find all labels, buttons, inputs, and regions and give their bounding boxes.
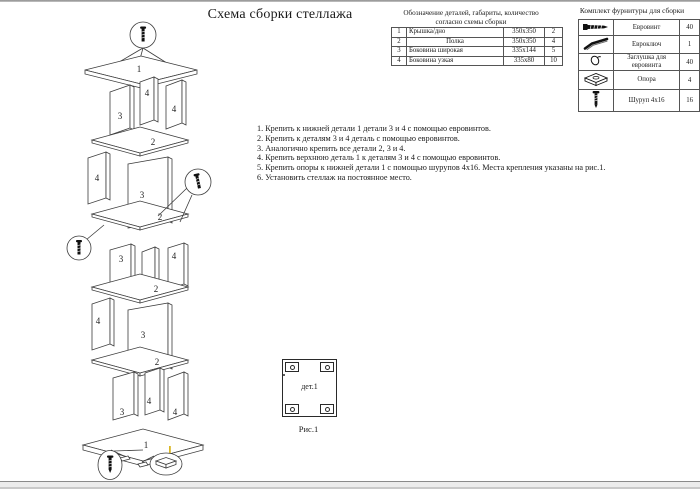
- part-label-shelf: 2: [151, 137, 156, 147]
- part-qty: 5: [545, 47, 563, 57]
- hardware-qty: 16: [680, 90, 700, 112]
- part-label-narrow: 4: [96, 316, 101, 326]
- part-qty: 10: [545, 56, 563, 66]
- foot-icon: [579, 71, 614, 90]
- window-bottom-edge: [0, 481, 700, 489]
- part-num: 1: [392, 28, 407, 38]
- screw-pad: [285, 362, 299, 372]
- assembly-diagram: 1 4 3 4 2 4 3 2: [40, 18, 270, 480]
- part-name: Боковина широкая: [407, 47, 504, 57]
- hardware-row: Евровинт 40: [579, 20, 700, 36]
- part-num: 3: [392, 47, 407, 57]
- part-num: 2: [392, 37, 407, 47]
- part-label-narrow: 4: [172, 104, 177, 114]
- part-label-bottom-panel: 1: [144, 440, 149, 450]
- figure-detail-square: дет.1: [282, 359, 337, 417]
- instruction-line: 3. Аналогично крепить все детали 2, 3 и …: [257, 144, 687, 154]
- window-top-edge: [0, 0, 700, 2]
- hardware-row: Евроключ 1: [579, 36, 700, 54]
- hardware-row: Шуруп 4х16 16: [579, 90, 700, 112]
- hardware-name: Шуруп 4х16: [613, 90, 679, 112]
- table-row: 1 Крышка/дно 350х350 2: [392, 28, 563, 38]
- part-label-shelf: 2: [158, 212, 163, 222]
- parts-table-title: Обозначение деталей, габариты, количеств…: [378, 9, 564, 26]
- instruction-line: 5. Крепить опоры к нижней детали 1 с пом…: [257, 163, 687, 173]
- hex-key-icon: [579, 36, 614, 54]
- part-qty: 4: [545, 37, 563, 47]
- instruction-line: 4. Крепить верхнюю деталь 1 к деталям 3 …: [257, 153, 687, 163]
- parts-table-title-line2: согласно схемы сборки: [378, 18, 564, 27]
- figure-caption: Рис.1: [282, 424, 335, 434]
- part-size: 335х80: [504, 56, 545, 66]
- part-size: 335х144: [504, 47, 545, 57]
- table-row: 2 Полка 350х350 4: [392, 37, 563, 47]
- accent-mark: [169, 446, 171, 454]
- part-size: 350х350: [504, 37, 545, 47]
- hardware-row: Опора 4: [579, 71, 700, 90]
- assembly-instruction-sheet: Схема сборки стеллажа Обозначение детале…: [0, 0, 700, 489]
- instruction-line: 6. Установить стеллаж на постоянное мест…: [257, 173, 687, 183]
- instruction-line: 1. Крепить к нижней детали 1 детали 3 и …: [257, 124, 687, 134]
- screw-hole-icon: [325, 407, 330, 412]
- hardware-qty: 1: [680, 36, 700, 54]
- hardware-table: Евровинт 40 Евроключ 1: [578, 19, 700, 112]
- edge-dot: [283, 374, 285, 376]
- hardware-qty: 4: [680, 71, 700, 90]
- table-row: 3 Боковина широкая 335х144 5: [392, 47, 563, 57]
- screw-pad: [285, 404, 299, 414]
- parts-table: 1 Крышка/дно 350х350 2 2 Полка 350х350 4…: [391, 27, 563, 66]
- hardware-qty: 40: [680, 54, 700, 71]
- table-row: 4 Боковина узкая 335х80 10: [392, 56, 563, 66]
- part-label-narrow: 4: [173, 407, 178, 417]
- part-name: Боковина узкая: [407, 56, 504, 66]
- screw-pad: [320, 362, 334, 372]
- hardware-name: Опора: [613, 71, 679, 90]
- part-label-narrow: 4: [95, 173, 100, 183]
- hardware-name: Евроключ: [613, 36, 679, 54]
- hardware-table-title: Комплект фурнитуры для сборки: [566, 6, 698, 15]
- euro-screw-icon: [579, 20, 614, 36]
- hardware-qty: 40: [680, 20, 700, 36]
- screw-hole-icon: [325, 365, 330, 370]
- screw-icon: [579, 90, 614, 112]
- part-size: 350х350: [504, 28, 545, 38]
- part-label-shelf: 2: [155, 357, 160, 367]
- part-label-narrow: 4: [145, 88, 150, 98]
- instruction-line: 2. Крепить к деталям 3 и 4 деталь с помо…: [257, 134, 687, 144]
- detail-label: дет.1: [283, 382, 336, 391]
- part-label-shelf: 2: [154, 284, 159, 294]
- parts-table-title-line1: Обозначение деталей, габариты, количеств…: [378, 9, 564, 18]
- part-label-top-panel: 1: [137, 64, 142, 74]
- part-label-narrow: 4: [172, 251, 177, 261]
- plug-icon: [579, 54, 614, 71]
- screw-pad: [320, 404, 334, 414]
- instructions-list: 1. Крепить к нижней детали 1 детали 3 и …: [257, 124, 687, 183]
- part-label-wide: 3: [120, 407, 125, 417]
- part-name: Полка: [407, 37, 504, 47]
- part-label-wide: 3: [119, 254, 124, 264]
- part-num: 4: [392, 56, 407, 66]
- part-label-wide: 3: [118, 111, 123, 121]
- screw-hole-icon: [290, 365, 295, 370]
- hardware-name: Евровинт: [613, 20, 679, 36]
- part-label-wide: 3: [140, 190, 145, 200]
- part-name: Крышка/дно: [407, 28, 504, 38]
- part-label-wide: 3: [141, 330, 146, 340]
- hardware-name: Заглушка для евровинта: [613, 54, 679, 71]
- screw-hole-icon: [290, 407, 295, 412]
- part-label-narrow: 4: [147, 396, 152, 406]
- part-qty: 2: [545, 28, 563, 38]
- hardware-row: Заглушка для евровинта 40: [579, 54, 700, 71]
